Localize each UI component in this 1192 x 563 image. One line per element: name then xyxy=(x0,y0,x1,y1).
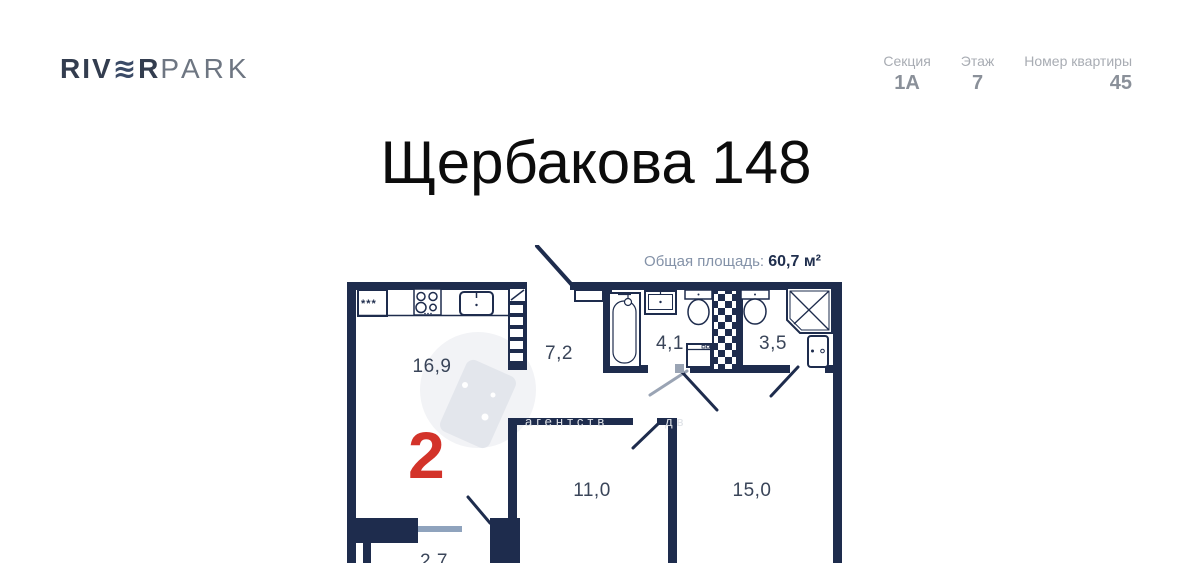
bathroom-door xyxy=(650,371,687,395)
room-label-balcony: 2,7 xyxy=(420,551,448,563)
room-label-bedroom1: 11,0 xyxy=(573,480,611,501)
toilet-icon xyxy=(685,290,712,325)
page-title: Щербакова 148 xyxy=(0,128,1192,197)
info-apartment-number: Номер квартиры 45 xyxy=(1024,53,1132,95)
entry-door xyxy=(537,246,572,285)
toilet2-icon xyxy=(741,290,769,324)
info-section: Секция 1А xyxy=(883,53,930,95)
shower-room-fixtures xyxy=(741,288,832,367)
floorplan: *** xyxy=(347,245,845,563)
vent-shaft xyxy=(713,290,737,370)
kitchen-fixtures xyxy=(358,289,508,316)
bedroom1-door xyxy=(633,422,660,448)
apartment-info: Секция 1А Этаж 7 Номер квартиры 45 xyxy=(883,53,1132,95)
floorplan-svg: *** xyxy=(347,245,845,563)
door-hinge-block xyxy=(675,364,684,373)
apartment-number-label: Номер квартиры xyxy=(1024,53,1132,69)
logo-park: PARK xyxy=(160,53,250,84)
room-label-bathroom: 4,1 xyxy=(656,333,684,354)
stove-icon xyxy=(414,289,441,315)
room-label-shower-room: 3,5 xyxy=(759,333,787,354)
logo-wave-icon: ≋ xyxy=(113,52,138,85)
shower-cabin-icon xyxy=(787,288,832,333)
riverpark-logo: RIV≋RPARK xyxy=(60,52,251,86)
kitchen-sink-icon xyxy=(460,292,493,315)
logo-river-part1: RIV xyxy=(60,53,113,84)
boiler-icon xyxy=(808,336,828,367)
bathroom-sink-icon xyxy=(645,287,676,314)
washing-machine-icon xyxy=(687,344,711,367)
floor-label: Этаж xyxy=(961,53,994,69)
watermark-text-left: агентств xyxy=(525,414,608,429)
bathtub-icon xyxy=(609,293,640,367)
floor-value: 7 xyxy=(961,72,994,95)
info-floor: Этаж 7 xyxy=(961,53,994,95)
logo-river-part2: R xyxy=(138,53,160,84)
fridge-marks: *** xyxy=(361,298,377,310)
room-label-kitchen: 16,9 xyxy=(413,356,452,377)
balcony-window xyxy=(418,526,462,532)
room-label-hallway: 7,2 xyxy=(545,343,573,364)
room-label-bedroom2: 15,0 xyxy=(733,480,772,501)
corridor-door xyxy=(681,371,717,410)
section-value: 1А xyxy=(883,72,930,95)
section-label: Секция xyxy=(883,53,930,69)
page: RIV≋RPARK Секция 1А Этаж 7 Номер квартир… xyxy=(0,0,1192,563)
watermark-text-right: дв xyxy=(665,414,688,429)
bathroom-fixtures xyxy=(609,287,712,367)
balcony-door xyxy=(468,497,490,523)
rooms-count-badge: 2 xyxy=(408,418,445,492)
entry-niche xyxy=(575,290,603,301)
apartment-number-value: 45 xyxy=(1024,72,1132,95)
